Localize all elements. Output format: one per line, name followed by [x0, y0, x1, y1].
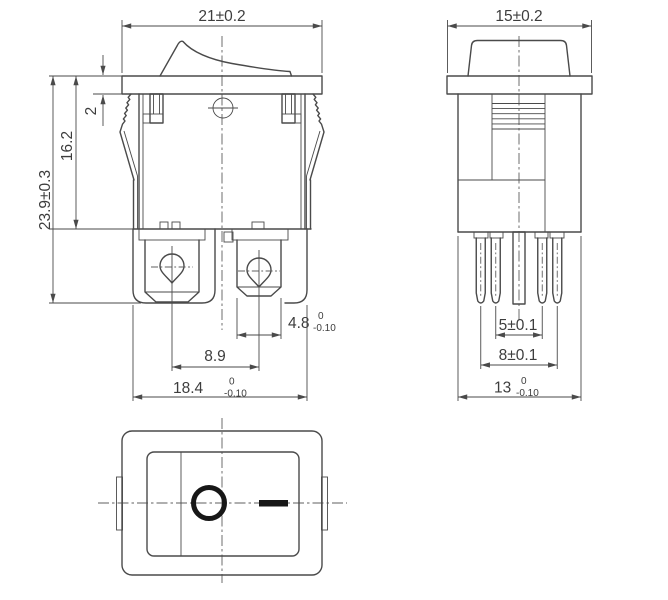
- front-base-width-label: 18.4: [173, 380, 204, 397]
- terminal-pitch-label: 8.9: [204, 348, 226, 365]
- terminal-width-tol-upper: 0: [318, 311, 324, 322]
- paper-background: [0, 0, 668, 600]
- total-height-label: 23.9±0.3: [37, 170, 54, 230]
- pin-pitch-inner-label: 5±0.1: [499, 317, 538, 334]
- flange-thickness-label: 2: [83, 107, 100, 116]
- pin-pitch-outer-label: 8±0.1: [499, 347, 538, 364]
- side-base-tol-lower: -0.10: [516, 388, 539, 399]
- side-base-width-label: 13: [494, 380, 511, 397]
- technical-drawing-canvas: 21±0.2 2 16.2 23.9±0.3 4.8 0: [0, 0, 668, 600]
- body-height-label: 16.2: [59, 131, 76, 161]
- terminal-width-label: 4.8: [288, 315, 310, 332]
- marking-on-symbol: [259, 500, 288, 507]
- front-base-tol-upper: 0: [229, 377, 235, 388]
- side-width-label: 15±0.2: [495, 8, 542, 25]
- rocker-switch-drawing: 21±0.2 2 16.2 23.9±0.3 4.8 0: [0, 0, 668, 600]
- side-base-tol-upper: 0: [521, 376, 527, 387]
- front-width-label: 21±0.2: [198, 8, 245, 25]
- terminal-width-tol-lower: -0.10: [313, 323, 336, 334]
- front-base-tol-lower: -0.10: [224, 389, 247, 400]
